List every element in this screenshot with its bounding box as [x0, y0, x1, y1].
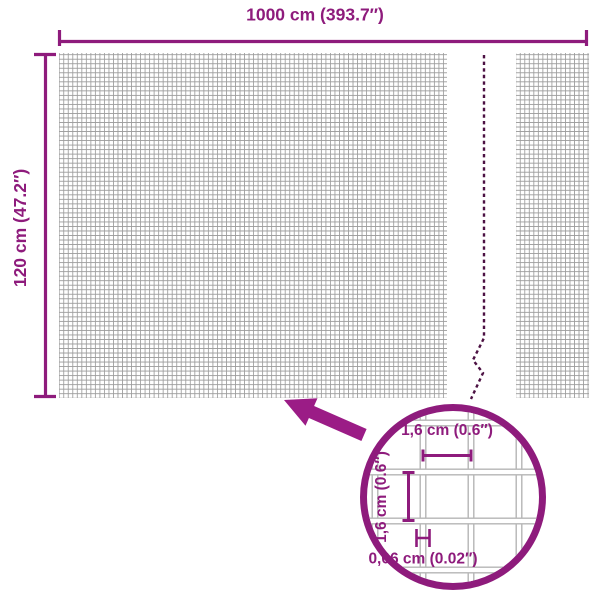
mesh-cell-height-label: 1,6 cm (0.6″)	[373, 451, 390, 543]
mesh-cell-width-label: 1,6 cm (0.6″)	[401, 422, 493, 439]
zoom-arrow-icon	[284, 398, 367, 441]
product-dimension-diagram: 1000 cm (393.7″) 120 cm (47.2″)	[0, 0, 600, 600]
diagram-svg: 1000 cm (393.7″) 120 cm (47.2″)	[0, 0, 600, 600]
mesh-panel-right	[516, 53, 589, 398]
width-dimension-line	[60, 30, 587, 46]
height-dimension-line	[34, 54, 56, 397]
total-width-label: 1000 cm (393.7″)	[246, 5, 384, 25]
break-line	[471, 55, 484, 399]
detail-lens: 1,6 cm (0.6″) 1,6 cm (0.6″) 0,06 cm (0.0…	[360, 404, 546, 590]
mesh-panels	[59, 53, 589, 398]
width-dimension: 1000 cm (393.7″)	[60, 5, 587, 47]
height-dimension: 120 cm (47.2″)	[10, 54, 56, 397]
total-height-label: 120 cm (47.2″)	[10, 169, 30, 287]
mesh-panel-main	[59, 53, 447, 398]
wire-thickness-label: 0,06 cm (0.02″)	[368, 551, 477, 568]
